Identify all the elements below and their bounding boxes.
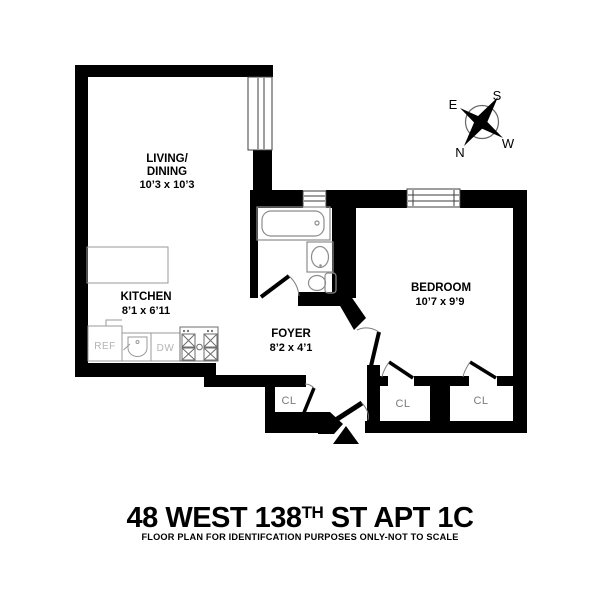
- floor-plan-page: REF DW: [0, 0, 600, 593]
- bedroom-window: [407, 189, 460, 207]
- entry-door: [328, 403, 368, 444]
- page-title: 48 WEST 138TH ST APT 1C: [127, 502, 474, 534]
- bedroom-label: BEDROOM: [411, 282, 471, 294]
- wall-closet-divider: [430, 376, 450, 433]
- foyer-dimensions: 8’2 x 4’1: [270, 342, 313, 354]
- bedroom-dimensions: 10’7 x 9’9: [416, 296, 465, 308]
- wall-bathroom-bottom: [298, 292, 345, 306]
- wall-top: [75, 65, 273, 77]
- wall-right: [513, 190, 527, 433]
- bathtub: [257, 207, 330, 240]
- wall-closet-right-top-b: [497, 376, 513, 386]
- closet-door-bedroom-left: [382, 362, 413, 378]
- bathroom-door: [261, 276, 299, 297]
- living-room-label-line2: DINING: [147, 166, 187, 178]
- dishwasher-label: DW: [157, 343, 175, 354]
- kitchen-dimensions: 8’1 x 6’11: [122, 305, 170, 317]
- living-room-window: [248, 77, 272, 150]
- kitchen-sink: [122, 333, 151, 361]
- closet-label-bedroom-right: CL: [473, 395, 488, 407]
- compass-rose: E S N W: [449, 88, 515, 160]
- closet-label-foyer: CL: [281, 395, 296, 407]
- compass-label-south: S: [493, 88, 502, 103]
- title-block: 48 WEST 138TH ST APT 1C FLOOR PLAN FOR I…: [127, 502, 474, 542]
- wall-closet-mid-top-a: [376, 376, 388, 386]
- dishwasher: DW: [151, 333, 180, 361]
- wall-bottom-left: [265, 412, 320, 433]
- bathroom-window: [303, 191, 326, 207]
- wall-closet-mid-top-b: [414, 376, 430, 386]
- wall-kitchen-bottom: [75, 363, 215, 377]
- windows: [248, 77, 460, 207]
- wall-bedroom-top-right: [460, 190, 527, 208]
- refrigerator: REF: [88, 320, 122, 361]
- living-room-label-line1: LIVING/: [146, 153, 188, 165]
- compass-label-north: N: [455, 145, 464, 160]
- kitchen-counter: [87, 247, 168, 283]
- floor-plan-drawing: REF DW: [0, 0, 600, 593]
- title-suffix: ST APT 1C: [323, 502, 474, 534]
- wall-left: [75, 65, 88, 377]
- refrigerator-label: REF: [94, 341, 116, 352]
- kitchen-label: KITCHEN: [120, 291, 171, 303]
- compass-label-east: E: [449, 97, 458, 112]
- toilet: [309, 273, 337, 293]
- kitchen-fixtures: REF DW: [87, 247, 218, 361]
- compass-label-west: W: [502, 136, 515, 151]
- wall-bedroom-door-jamb: [367, 365, 380, 423]
- walls: [75, 65, 527, 434]
- bathroom-fixtures: [257, 207, 336, 293]
- closet-door-bedroom-right: [463, 362, 496, 378]
- living-room-dimensions: 10’3 x 10’3: [139, 179, 194, 191]
- stove: [180, 327, 218, 361]
- closet-door-foyer: [303, 384, 314, 415]
- wall-living-right: [253, 150, 272, 192]
- closet-label-bedroom-left: CL: [395, 398, 410, 410]
- compass-needle-ew: [460, 108, 503, 138]
- bedroom-door: [357, 328, 379, 366]
- foyer-label: FOYER: [271, 328, 311, 340]
- title-superscript: TH: [302, 503, 324, 522]
- wall-foyer-bottom: [204, 375, 306, 387]
- bathroom-sink: [307, 242, 333, 272]
- wall-closet-right-top-a: [450, 376, 469, 386]
- wall-foyer-closet-left: [265, 375, 275, 415]
- title-prefix: 48 WEST 138: [127, 502, 302, 534]
- page-subtitle: FLOOR PLAN FOR IDENTIFCATION PURPOSES ON…: [141, 532, 458, 542]
